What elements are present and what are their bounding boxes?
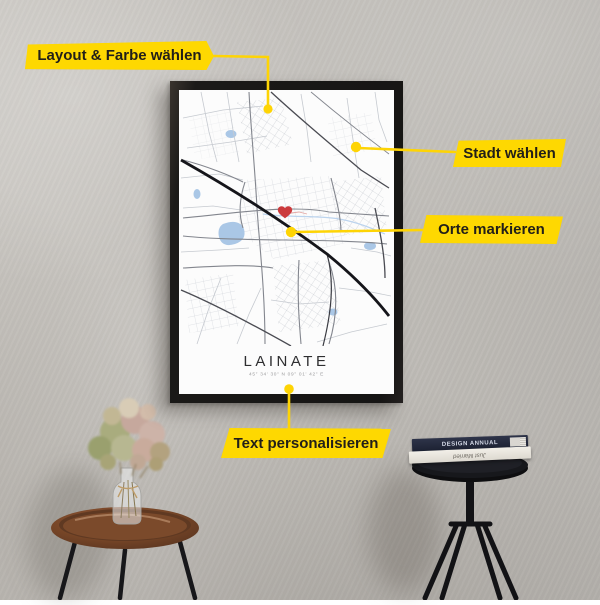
book-light-spine-text: Just Married xyxy=(453,451,486,458)
callout-label-text-personalisieren[interactable]: Text personalisieren xyxy=(221,428,391,458)
callout-label-orte-text: Orte markieren xyxy=(438,221,545,238)
callout-label-layout-farbe-text: Layout & Farbe wählen xyxy=(37,47,201,64)
city-map-print xyxy=(179,90,394,346)
callout-label-orte[interactable]: Orte markieren xyxy=(420,215,563,244)
poster-caption: LAINATE 45° 34' 30" N 09° 01' 42" E xyxy=(179,346,394,379)
poster-coordinates: 45° 34' 30" N 09° 01' 42" E xyxy=(213,372,359,377)
callout-label-stadt[interactable]: Stadt wählen xyxy=(453,139,566,167)
book-dark-spine-text: DESIGN ANNUAL xyxy=(442,440,498,448)
callout-label-text-personalisieren-text: Text personalisieren xyxy=(234,435,379,452)
callout-label-stadt-text: Stadt wählen xyxy=(463,145,556,162)
poster-print: LAINATE 45° 34' 30" N 09° 01' 42" E xyxy=(179,90,394,394)
stool-wall-shadow xyxy=(368,468,440,592)
framed-map-poster: LAINATE 45° 34' 30" N 09° 01' 42" E xyxy=(170,81,403,403)
poster-city-title: LAINATE xyxy=(179,353,394,370)
book-pages-edge xyxy=(510,437,526,447)
callout-label-layout-farbe[interactable]: Layout & Farbe wählen xyxy=(25,41,214,70)
